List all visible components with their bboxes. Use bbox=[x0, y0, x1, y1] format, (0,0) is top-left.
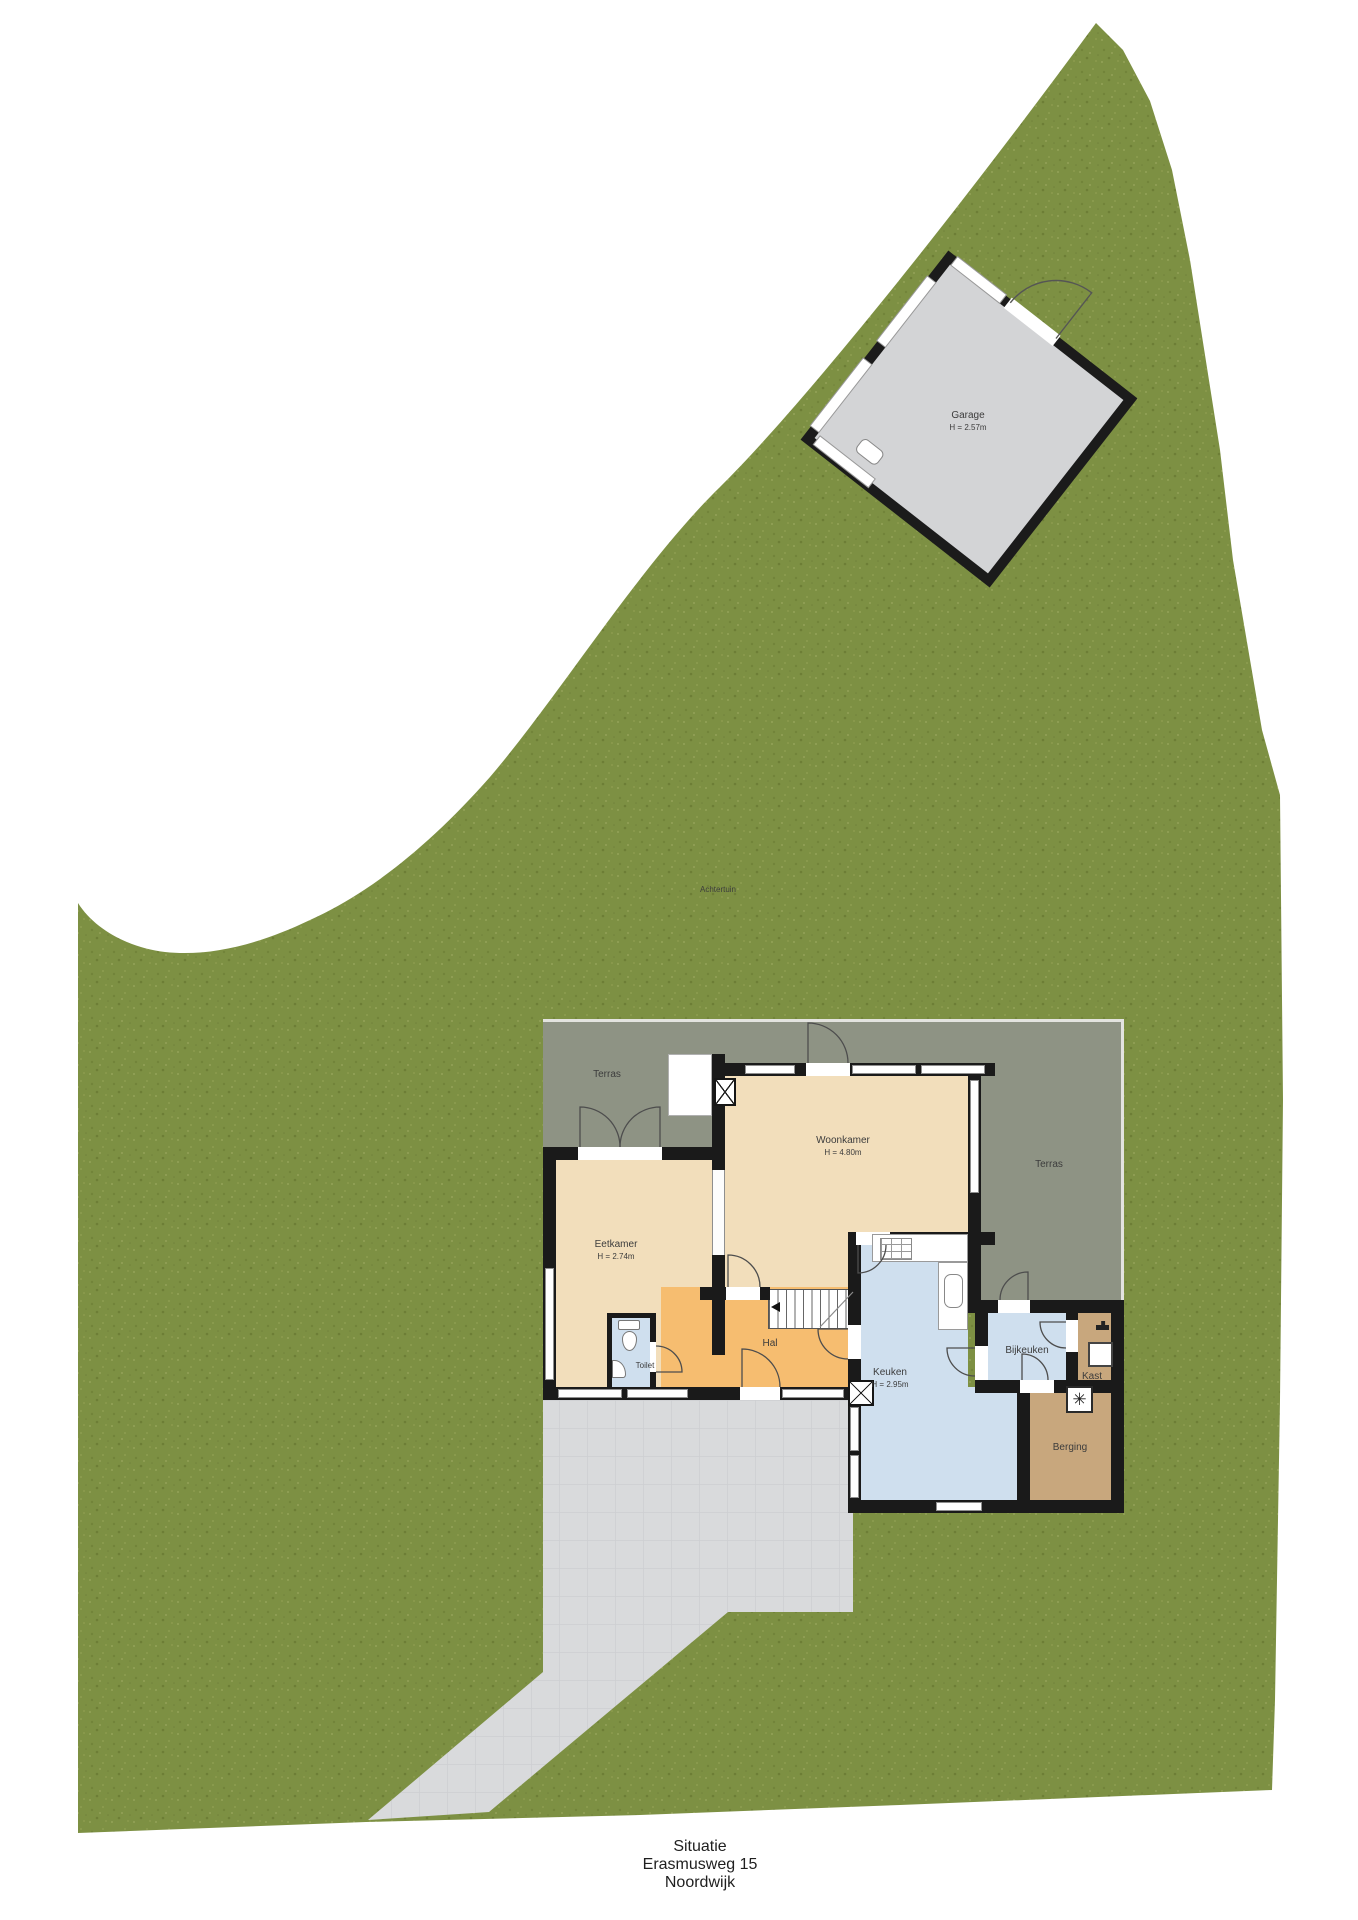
room-label-woonkamer: Woonkamer H = 4.80m bbox=[816, 1135, 870, 1158]
room-label-text: Terras bbox=[1035, 1159, 1063, 1170]
door-swing bbox=[1000, 1272, 1028, 1300]
room-label-berging: Berging bbox=[1053, 1436, 1087, 1456]
door-swings-overlay bbox=[0, 0, 1358, 1920]
room-label-text: Bijkeuken bbox=[1005, 1345, 1048, 1356]
room-label-kast: Kast bbox=[1082, 1365, 1102, 1385]
room-label-text: Woonkamer bbox=[816, 1135, 870, 1148]
backyard-label: Achtertuin bbox=[700, 885, 736, 895]
room-height-text: H = 2.74m bbox=[595, 1251, 638, 1261]
situatie-plan: ✳ Terras Woonkamer H = 4.80m Terras Eetk… bbox=[0, 0, 1358, 1920]
room-label-terras-left: Terras bbox=[593, 1063, 621, 1083]
garage-label: Garage H = 2.57m bbox=[949, 410, 986, 433]
backyard-label-text: Achtertuin bbox=[700, 885, 736, 894]
room-label-keuken: Keuken H = 2.95m bbox=[871, 1367, 908, 1390]
plan-title: Situatie bbox=[500, 1838, 900, 1856]
room-height-text: H = 4.80m bbox=[816, 1147, 870, 1157]
door-swing bbox=[728, 1255, 760, 1287]
plan-address: Erasmusweg 15 bbox=[500, 1856, 900, 1874]
room-height-text: H = 2.95m bbox=[871, 1379, 908, 1389]
door-swing bbox=[620, 1107, 660, 1147]
room-label-hal: Hal bbox=[762, 1332, 777, 1352]
garage-height-text: H = 2.57m bbox=[949, 422, 986, 432]
door-swing bbox=[808, 1023, 848, 1063]
room-label-text: Toilet bbox=[636, 1361, 655, 1370]
room-label-eetkamer: Eetkamer H = 2.74m bbox=[595, 1239, 638, 1262]
plan-title-block: Situatie Erasmusweg 15 Noordwijk bbox=[500, 1838, 900, 1892]
door-swing bbox=[580, 1107, 620, 1147]
door-swing bbox=[656, 1346, 682, 1372]
door-swing bbox=[742, 1349, 780, 1387]
door-swing bbox=[858, 1245, 886, 1273]
room-label-text: Berging bbox=[1053, 1442, 1087, 1453]
stairs-cut-line bbox=[820, 1292, 853, 1327]
room-label-text: Keuken bbox=[871, 1367, 908, 1380]
room-label-text: Eetkamer bbox=[595, 1239, 638, 1252]
room-label-toilet: Toilet bbox=[636, 1361, 655, 1371]
plan-city: Noordwijk bbox=[500, 1874, 900, 1892]
room-label-text: Hal bbox=[762, 1338, 777, 1349]
door-swing bbox=[818, 1329, 848, 1359]
garage-label-text: Garage bbox=[949, 410, 986, 423]
room-label-text: Kast bbox=[1082, 1371, 1102, 1382]
door-swing bbox=[947, 1348, 975, 1376]
room-label-text: Terras bbox=[593, 1069, 621, 1080]
room-label-terras-right: Terras bbox=[1035, 1153, 1063, 1173]
room-label-bijkeuken: Bijkeuken bbox=[1005, 1339, 1048, 1359]
